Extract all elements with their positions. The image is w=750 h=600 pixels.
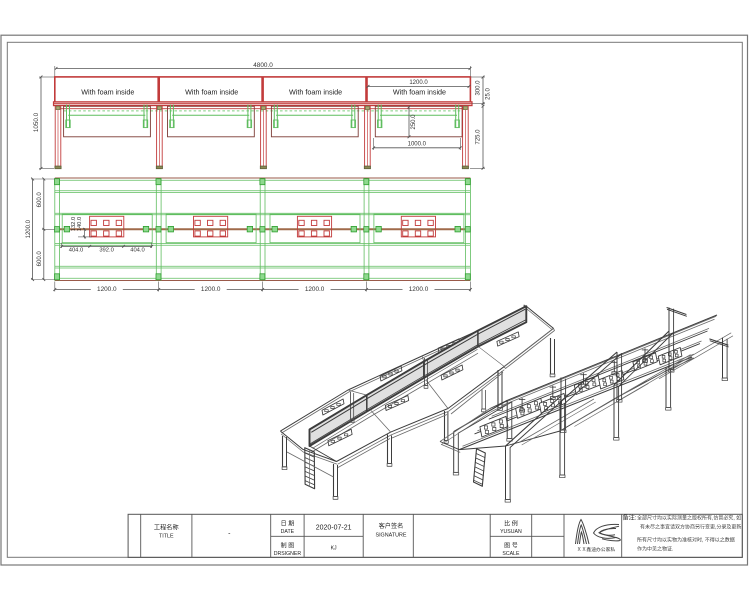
svg-text:日 期: 日 期 [281, 520, 295, 528]
svg-text:DRSIGNER: DRSIGNER [274, 551, 302, 557]
svg-text:25.0: 25.0 [486, 88, 492, 100]
svg-text:SIGNATURE: SIGNATURE [375, 533, 406, 539]
svg-text:DATE: DATE [281, 529, 295, 535]
svg-text:With foam inside: With foam inside [185, 87, 238, 96]
svg-text:工程名称: 工程名称 [154, 524, 179, 532]
svg-text:600.0: 600.0 [37, 192, 43, 208]
svg-text:YUSUAN: YUSUAN [500, 529, 522, 535]
svg-text:KJ: KJ [331, 546, 337, 552]
svg-text:With foam inside: With foam inside [289, 87, 342, 96]
svg-text:404.0: 404.0 [69, 248, 84, 254]
svg-text:1200.0: 1200.0 [305, 286, 325, 293]
svg-text:250.0: 250.0 [411, 114, 417, 130]
svg-text:制 图: 制 图 [281, 542, 295, 550]
svg-text:图 号: 图 号 [504, 543, 518, 550]
svg-text:725.0: 725.0 [476, 129, 482, 145]
svg-text:1200.0: 1200.0 [97, 286, 117, 293]
svg-text:1200.0: 1200.0 [409, 286, 429, 293]
svg-text:所有尺寸均以实物为准核对时, 不得以之数据: 所有尺寸均以实物为准核对时, 不得以之数据 [637, 537, 735, 544]
svg-text:作为中见之物证.: 作为中见之物证. [637, 546, 673, 553]
svg-text:全部尺寸均以实际测量之版权所有,仿冒必究, 如: 全部尺寸均以实际测量之版权所有,仿冒必究, 如 [637, 515, 741, 522]
svg-text:TITLE: TITLE [159, 534, 174, 540]
svg-text:392.0: 392.0 [99, 248, 114, 254]
svg-text:4800.0: 4800.0 [253, 62, 273, 69]
svg-text:2020-07-21: 2020-07-21 [316, 525, 352, 532]
svg-text:With foam inside: With foam inside [81, 87, 134, 96]
svg-text:1200.0: 1200.0 [409, 80, 428, 86]
svg-text:140.0: 140.0 [77, 217, 83, 232]
svg-text:ＸＸ鑫迪办公家私: ＸＸ鑫迪办公家私 [577, 546, 616, 553]
svg-text:备注:: 备注: [623, 514, 637, 522]
svg-text:404.0: 404.0 [130, 248, 145, 254]
svg-text:SCALE: SCALE [502, 551, 520, 557]
svg-text:600.0: 600.0 [37, 251, 43, 267]
svg-text:1200.0: 1200.0 [26, 219, 32, 238]
svg-text:1200.0: 1200.0 [201, 286, 221, 293]
svg-text:With foam inside: With foam inside [393, 87, 446, 96]
svg-text:300.0: 300.0 [476, 80, 482, 96]
svg-text:1050.0: 1050.0 [33, 112, 40, 132]
svg-text:比 例: 比 例 [504, 520, 518, 528]
svg-text:客户签名: 客户签名 [379, 522, 404, 530]
svg-text:有未尽之事宜请双方协商另行变更,分录及更新.: 有未尽之事宜请双方协商另行变更,分录及更新. [640, 524, 743, 531]
svg-text:1000.0: 1000.0 [408, 142, 427, 148]
